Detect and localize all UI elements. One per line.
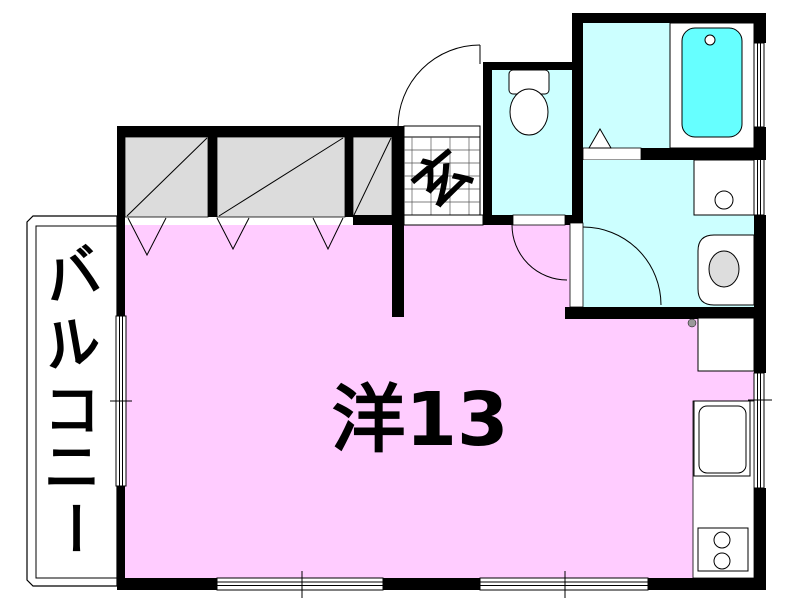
wall-bottom-1 (117, 578, 217, 590)
floor-plan-svg: 玄 (0, 0, 792, 607)
refrigerator-icon (698, 318, 754, 371)
washroom-door-opening (570, 223, 583, 307)
washing-machine-drum-icon (715, 191, 733, 209)
balcony-char: コ (44, 379, 100, 444)
wall-bottom-2 (383, 578, 480, 590)
refrigerator-knob-icon (688, 319, 696, 327)
wall-left-upper (117, 126, 125, 316)
closet-divider-wall-1 (208, 137, 217, 217)
wall-bottom-3 (648, 578, 766, 590)
floor-plan: 玄 (0, 0, 792, 607)
wall-top-left (117, 126, 392, 137)
toilet-left-wall (483, 62, 492, 225)
wall-toilet-bath-divider (572, 13, 583, 225)
bathroom (583, 23, 766, 160)
washroom (565, 160, 766, 319)
bathtub-drain-icon (705, 35, 715, 45)
wall-stub-genkan (392, 126, 404, 317)
wall-top-right (573, 13, 766, 23)
wall-right-3 (754, 215, 766, 373)
wall-left-lower (117, 486, 125, 590)
wall-right-4 (754, 488, 766, 590)
stove-burner-icon (714, 553, 730, 569)
bathroom-window (754, 43, 764, 127)
balcony-label: バ ル コ ニ ー (37, 238, 107, 556)
toilet-bowl-icon (510, 89, 548, 135)
washroom-window (754, 158, 764, 215)
bathroom-bottom-wall (641, 148, 766, 160)
kitchen (688, 318, 754, 578)
kitchen-window (754, 373, 764, 488)
entrance-threshold (404, 126, 480, 137)
south-window-1 (217, 578, 383, 590)
toilet-top-wall (483, 62, 583, 70)
main-room-label: 洋13 (332, 377, 509, 463)
bathroom-door-opening (583, 148, 641, 160)
balcony-char: ー (41, 500, 106, 556)
vanity-basin-icon (709, 251, 739, 287)
closet-3-front-wall (353, 215, 392, 225)
south-window-2 (480, 578, 648, 590)
toilet-door-opening (513, 215, 565, 225)
balcony-char: ル (39, 308, 105, 382)
balcony-char: ニ (44, 436, 100, 501)
closet-divider-wall-2 (345, 137, 353, 217)
kitchen-sink-icon (699, 406, 746, 473)
washroom-bottom-wall (565, 307, 766, 319)
stove-burner-icon (714, 532, 730, 548)
toilet-bottom-wall-a (483, 215, 513, 225)
